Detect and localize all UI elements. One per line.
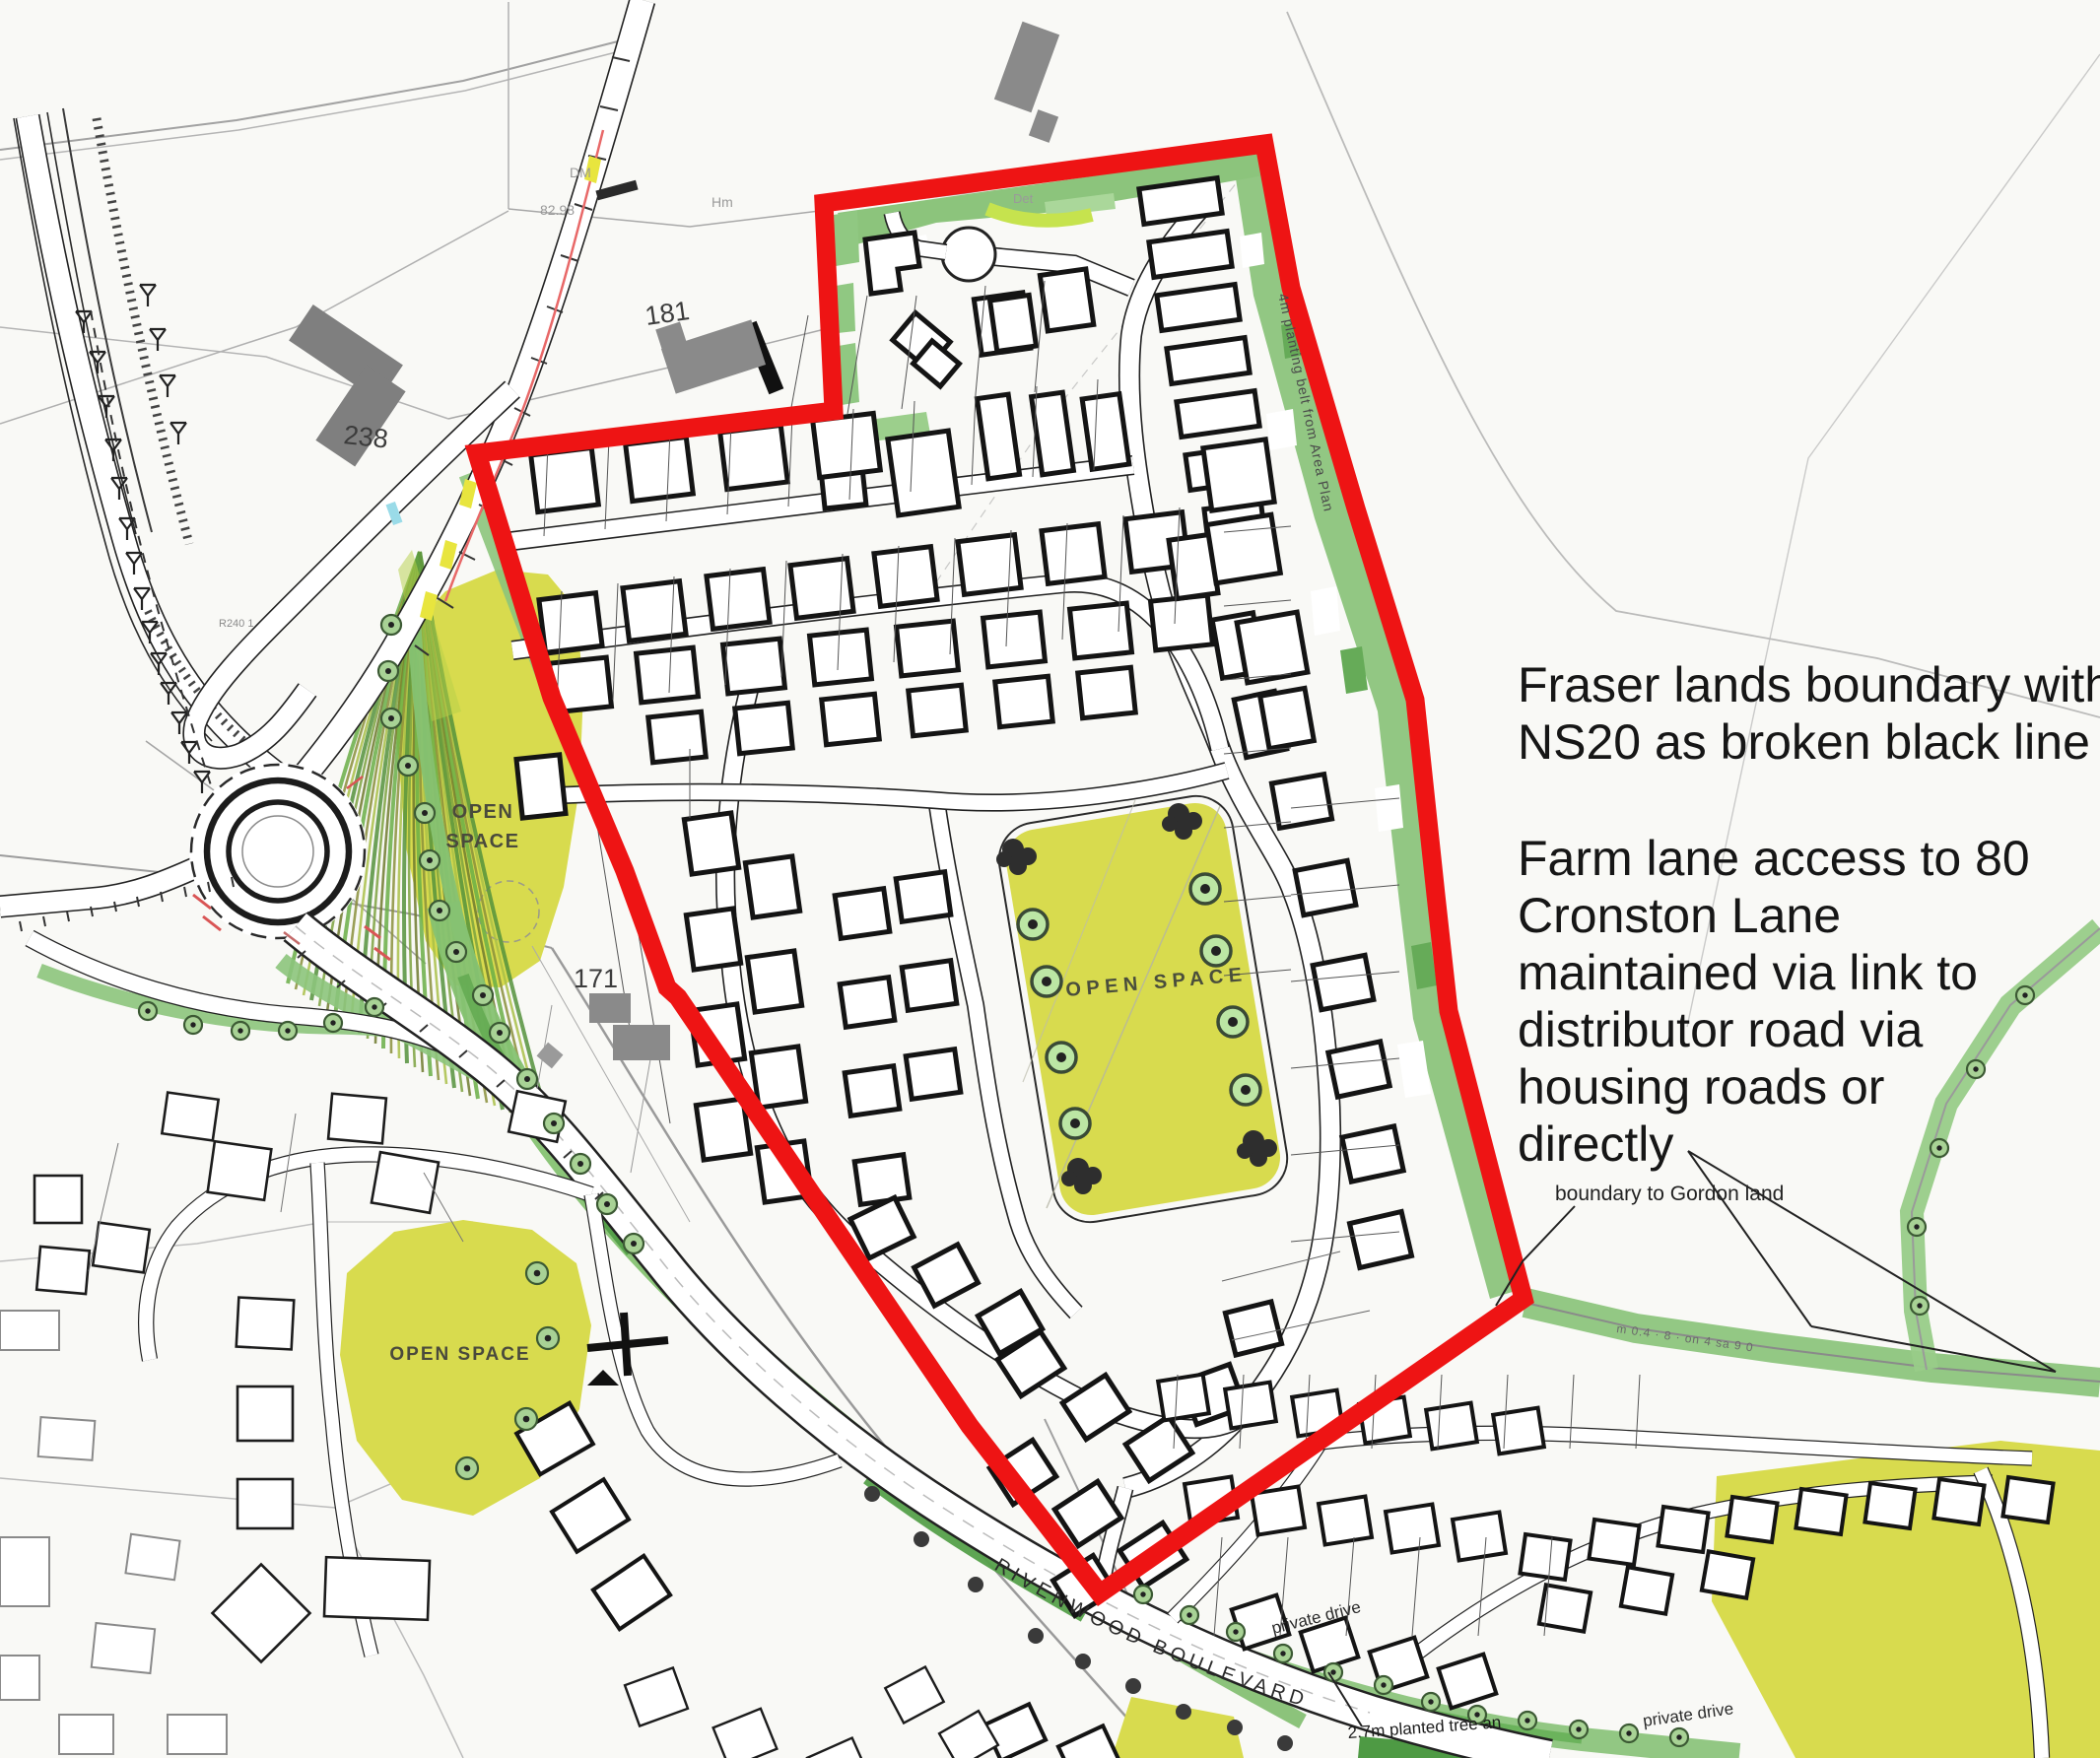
- svg-text:Det: Det: [1013, 191, 1034, 206]
- svg-text:maintained via link to: maintained via link to: [1518, 945, 1978, 1000]
- svg-text:distributor road via: distributor road via: [1518, 1002, 1923, 1057]
- svg-text:Farm lane access to 80: Farm lane access to 80: [1518, 831, 2030, 886]
- svg-text:boundary to Gordon land: boundary to Gordon land: [1555, 1183, 1784, 1205]
- svg-text:OPEN: OPEN: [452, 801, 514, 823]
- svg-text:R240 1: R240 1: [219, 618, 253, 630]
- svg-text:181: 181: [644, 296, 692, 331]
- svg-text:Fraser lands boundary with: Fraser lands boundary with: [1518, 657, 2100, 712]
- svg-text:SPACE: SPACE: [446, 831, 520, 852]
- svg-text:DM: DM: [570, 165, 591, 180]
- svg-text:82.98: 82.98: [540, 202, 575, 218]
- svg-text:171: 171: [574, 964, 618, 993]
- svg-text:NS20 as broken black line: NS20 as broken black line: [1518, 714, 2090, 770]
- svg-text:housing roads or: housing roads or: [1518, 1059, 1884, 1115]
- svg-text:Hm: Hm: [711, 194, 733, 210]
- svg-text:Cronston Lane: Cronston Lane: [1518, 888, 1841, 943]
- svg-text:OPEN SPACE: OPEN SPACE: [389, 1344, 530, 1365]
- svg-text:238: 238: [342, 420, 389, 454]
- svg-text:directly: directly: [1518, 1116, 1673, 1172]
